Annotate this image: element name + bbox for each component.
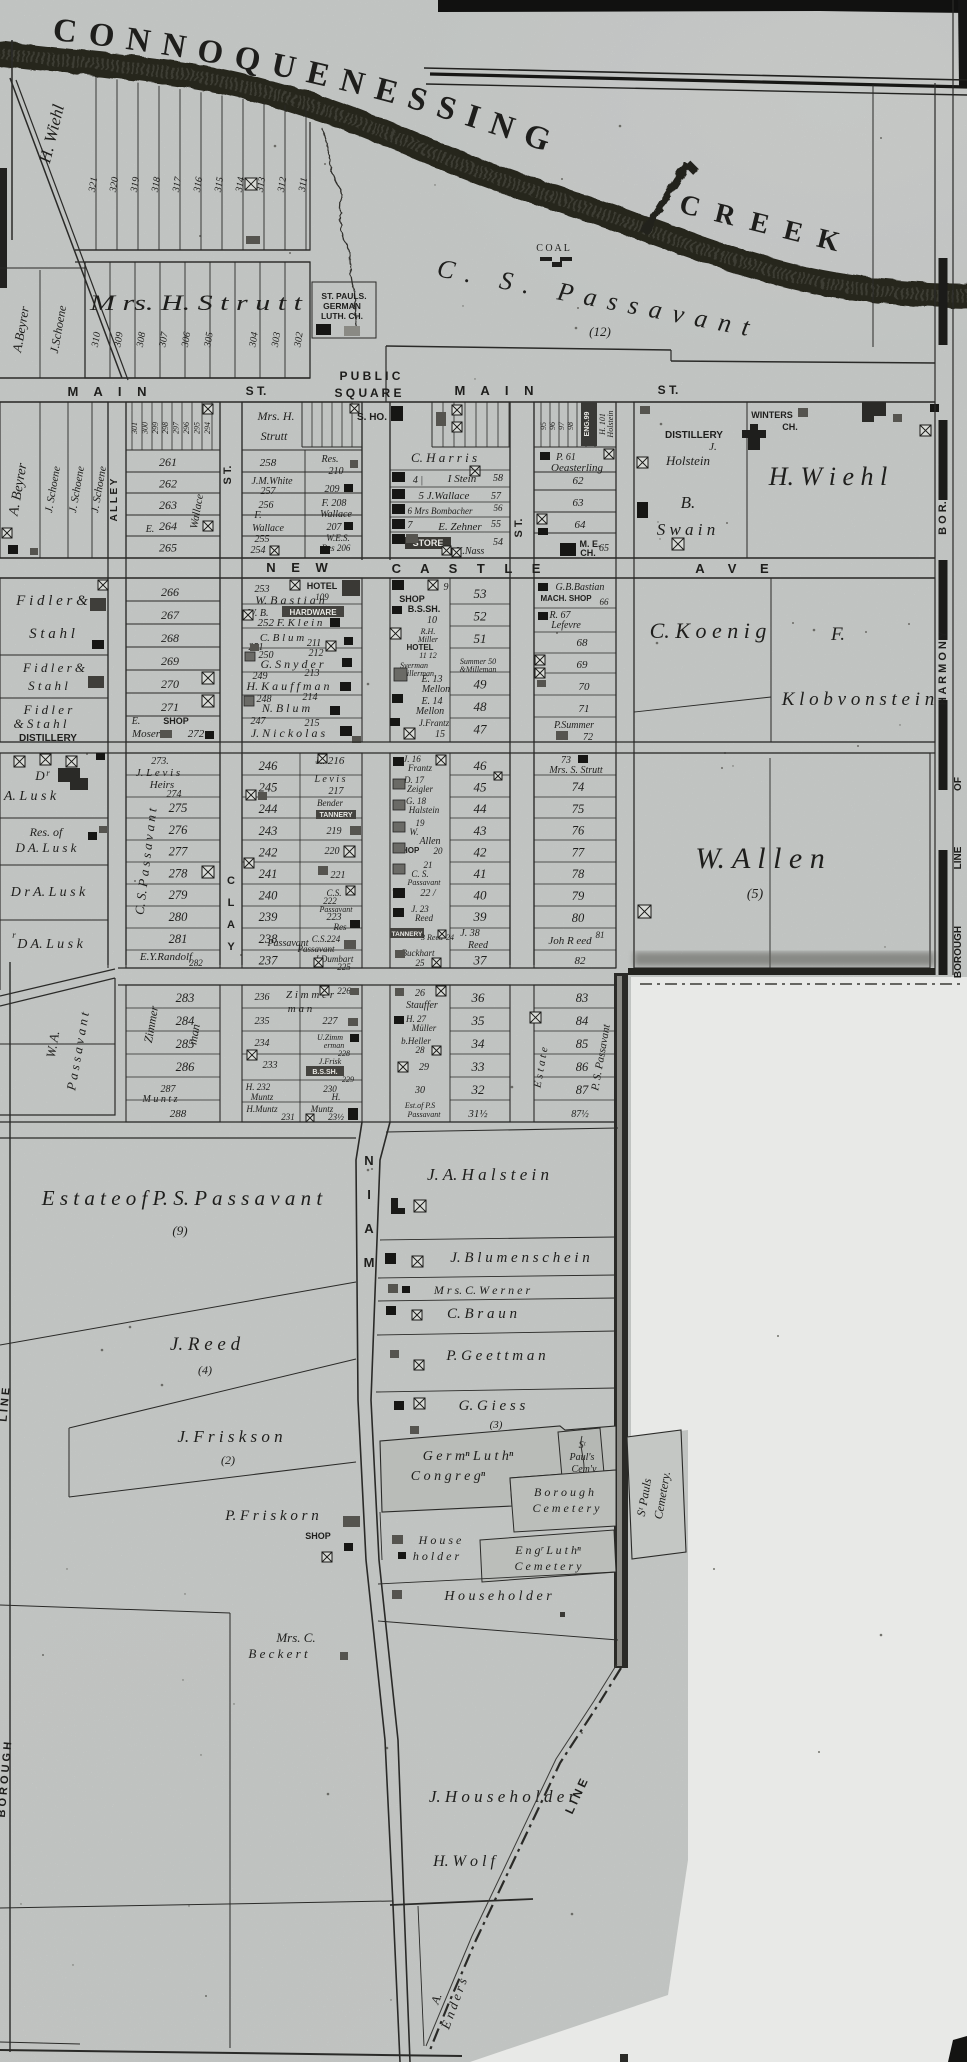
svg-text:56: 56	[494, 503, 504, 513]
svg-text:C.S.224: C.S.224	[312, 934, 341, 944]
svg-text:M: M	[364, 1255, 375, 1270]
svg-text:49: 49	[474, 676, 488, 691]
svg-text:282: 282	[189, 958, 203, 968]
svg-text:34: 34	[471, 1036, 486, 1051]
svg-text:L e v i s: L e v i s	[314, 774, 346, 785]
svg-text:213: 213	[305, 668, 320, 679]
svg-text:Muntz: Muntz	[250, 1092, 274, 1102]
svg-text:15: 15	[435, 729, 445, 740]
svg-text:B.S.SH.: B.S.SH.	[408, 604, 441, 614]
svg-text:WINTERS: WINTERS	[751, 410, 793, 420]
svg-text:I Stein: I Stein	[447, 473, 477, 485]
svg-text:Buckhart: Buckhart	[402, 948, 435, 958]
svg-text:W.E.S.: W.E.S.	[326, 533, 349, 543]
svg-text:H. 232: H. 232	[245, 1082, 271, 1092]
svg-text:87: 87	[576, 1083, 589, 1097]
svg-text:217: 217	[329, 786, 345, 797]
svg-text:S t a h l: S t a h l	[29, 626, 75, 642]
svg-text:274: 274	[167, 789, 182, 800]
svg-text:I: I	[367, 1187, 371, 1202]
svg-text:31½: 31½	[467, 1108, 487, 1120]
svg-text:257: 257	[261, 486, 277, 497]
svg-text:4 |: 4 |	[413, 475, 423, 486]
svg-text:301: 301	[130, 422, 139, 435]
svg-text:66: 66	[600, 597, 610, 607]
svg-text:F i d l e r &: F i d l e r &	[22, 660, 86, 675]
svg-text:S w a i n: S w a i n	[657, 520, 716, 539]
svg-text:J.Frisk: J.Frisk	[319, 1057, 342, 1066]
svg-text:41: 41	[474, 866, 487, 881]
svg-text:N. B l u m: N. B l u m	[261, 701, 311, 715]
svg-text:281: 281	[169, 932, 188, 946]
svg-text:98: 98	[566, 422, 575, 430]
svg-text:74: 74	[572, 780, 585, 794]
svg-text:Lefevre: Lefevre	[550, 620, 581, 631]
svg-text:246: 246	[259, 759, 279, 773]
svg-text:296: 296	[182, 422, 191, 434]
svg-text:G e r mⁿ L u t hⁿ: G e r mⁿ L u t hⁿ	[423, 1449, 514, 1464]
svg-text:P. F r i s k o r n: P. F r i s k o r n	[224, 1508, 318, 1524]
svg-text:N E W: N E W	[266, 560, 334, 575]
svg-text:S. HO.: S. HO.	[357, 412, 387, 423]
svg-text:96: 96	[548, 422, 557, 430]
svg-text:Müller: Müller	[411, 1023, 437, 1033]
svg-text:300: 300	[140, 422, 149, 435]
svg-text:278: 278	[169, 866, 189, 880]
svg-text:Frantz: Frantz	[407, 763, 433, 773]
svg-text:A: A	[364, 1221, 374, 1236]
svg-text:54: 54	[493, 537, 503, 548]
svg-text:268: 268	[161, 631, 179, 645]
svg-text:M rs. H. S t r u t t: M rs. H. S t r u t t	[89, 290, 304, 315]
svg-text:m a n: m a n	[288, 1003, 313, 1015]
svg-text:295: 295	[192, 422, 201, 434]
svg-text:243: 243	[259, 824, 278, 838]
svg-text:E.: E.	[145, 524, 155, 535]
svg-text:& S t a h l: & S t a h l	[13, 716, 66, 731]
svg-text:S T.: S T.	[658, 383, 679, 397]
svg-text:255: 255	[255, 534, 270, 545]
svg-text:Res: Res	[333, 922, 347, 932]
svg-text:82: 82	[575, 955, 587, 967]
svg-text:E.: E.	[131, 716, 141, 727]
svg-text:294: 294	[203, 422, 212, 434]
svg-text:Holstein: Holstein	[665, 453, 710, 468]
svg-text:M A I N: M A I N	[67, 384, 152, 399]
svg-text:25: 25	[416, 958, 426, 968]
svg-text:9: 9	[444, 582, 449, 593]
svg-text:DISTILLERY: DISTILLERY	[665, 430, 723, 441]
svg-text:TANNERY: TANNERY	[392, 931, 423, 938]
svg-text:Paul's: Paul's	[569, 1452, 595, 1463]
svg-text:32: 32	[471, 1082, 486, 1097]
svg-text:5 J.Wallace: 5 J.Wallace	[419, 490, 470, 502]
svg-text:6 Mrs Bombacher: 6 Mrs Bombacher	[408, 506, 473, 516]
svg-text:236: 236	[255, 992, 270, 1003]
svg-text:71: 71	[579, 703, 590, 715]
svg-text:C e m e t e r y: C e m e t e r y	[515, 1559, 583, 1573]
svg-text:J. F r i s k s o n: J. F r i s k s o n	[177, 1427, 282, 1446]
svg-text:C o n g r e gⁿ: C o n g r e gⁿ	[411, 1469, 486, 1484]
svg-text:286: 286	[176, 1060, 196, 1074]
svg-text:Est.of P.S: Est.of P.S	[404, 1101, 435, 1110]
svg-text:C. H a r r i s: C. H a r r i s	[411, 450, 477, 465]
svg-text:BOROUGH: BOROUGH	[953, 926, 964, 978]
svg-text:Wallace: Wallace	[320, 509, 352, 520]
svg-text:F i d l e r: F i d l e r	[23, 702, 74, 717]
svg-text:47: 47	[474, 722, 488, 737]
svg-text:75: 75	[572, 802, 585, 816]
svg-text:M u n t z: M u n t z	[142, 1094, 178, 1105]
svg-text:270: 270	[161, 677, 179, 691]
svg-text:63: 63	[573, 497, 585, 509]
svg-text:288: 288	[170, 1108, 187, 1120]
svg-text:Stauffer: Stauffer	[406, 1000, 438, 1011]
svg-text:77: 77	[572, 845, 585, 859]
svg-text:SHOP: SHOP	[163, 716, 189, 726]
svg-text:J. L e v i s: J. L e v i s	[136, 767, 180, 779]
svg-text:Wallace: Wallace	[252, 523, 284, 534]
svg-text:CH.: CH.	[782, 422, 798, 432]
svg-text:C O A L: C O A L	[536, 243, 570, 254]
svg-text:J. H o u s e h o l d e r: J. H o u s e h o l d e r	[429, 1787, 576, 1806]
svg-text:S Q U A R E: S Q U A R E	[334, 386, 401, 400]
svg-text:283: 283	[176, 991, 195, 1005]
svg-text:J.: J.	[709, 441, 717, 453]
svg-text:39: 39	[473, 909, 488, 924]
svg-text:209: 209	[325, 484, 340, 495]
svg-text:261: 261	[159, 455, 177, 469]
svg-text:H. W i e h l: H. W i e h l	[768, 462, 887, 491]
svg-text:P. G e e t t m a n: P. G e e t t m a n	[445, 1348, 545, 1364]
svg-text:Mrs. C.: Mrs. C.	[275, 1630, 315, 1645]
svg-text:Mellon: Mellon	[415, 706, 444, 717]
svg-text:F.: F.	[253, 510, 261, 521]
svg-text:S T.: S T.	[222, 466, 234, 485]
svg-text:S T.: S T.	[513, 519, 525, 538]
svg-text:42: 42	[474, 844, 488, 859]
svg-text:J. B l u m e n s c h e i n: J. B l u m e n s c h e i n	[450, 1250, 590, 1266]
svg-text:237: 237	[259, 953, 279, 967]
svg-text:(2): (2)	[221, 1453, 235, 1467]
svg-text:234: 234	[255, 1038, 270, 1049]
svg-text:241: 241	[259, 867, 278, 881]
svg-text:68: 68	[577, 637, 589, 649]
svg-text:J.Frantz: J.Frantz	[419, 718, 450, 728]
svg-text:A: A	[227, 919, 235, 931]
svg-text:Bender: Bender	[317, 798, 343, 808]
svg-text:83: 83	[576, 991, 589, 1005]
svg-text:H. W o l f: H. W o l f	[432, 1853, 497, 1870]
svg-text:E.Y.Randolf: E.Y.Randolf	[139, 951, 194, 963]
svg-text:280: 280	[169, 910, 189, 924]
svg-text:D: D	[34, 768, 45, 783]
svg-text:F i d l e r &: F i d l e r &	[15, 593, 88, 609]
svg-text:Moser: Moser	[131, 728, 161, 740]
svg-text:N: N	[364, 1153, 373, 1168]
svg-text:55: 55	[491, 519, 501, 530]
svg-text:C e m e t e r y: C e m e t e r y	[533, 1501, 601, 1515]
svg-text:53: 53	[474, 586, 488, 601]
svg-text:C: C	[227, 875, 235, 887]
svg-text:OF: OF	[953, 777, 964, 791]
svg-text:F.: F.	[830, 624, 845, 645]
svg-text:C. K o e n i g: C. K o e n i g	[650, 618, 767, 643]
svg-text:11 12: 11 12	[419, 651, 436, 660]
svg-text:MACH. SHOP: MACH. SHOP	[540, 594, 592, 603]
svg-text:244: 244	[259, 802, 278, 816]
svg-text:80: 80	[572, 911, 585, 925]
svg-text:Res.: Res.	[321, 454, 339, 465]
svg-text:A L L E Y: A L L E Y	[109, 478, 120, 521]
svg-text:(9): (9)	[172, 1223, 187, 1238]
svg-text:H. K a u f f m a n: H. K a u f f m a n	[245, 679, 329, 693]
svg-text:S T.: S T.	[246, 384, 267, 398]
svg-text:Mrs. H.: Mrs. H.	[256, 409, 294, 423]
svg-text:r: r	[12, 930, 16, 940]
svg-text:B e c k e r t: B e c k e r t	[248, 1646, 308, 1661]
svg-text:SHOP: SHOP	[305, 1531, 331, 1541]
svg-text:J. A. H a l s t e i n: J. A. H a l s t e i n	[427, 1165, 549, 1184]
svg-text:242: 242	[259, 845, 278, 859]
svg-text:Zeigler: Zeigler	[407, 784, 433, 794]
svg-text:266: 266	[161, 585, 179, 599]
svg-text:10: 10	[427, 615, 437, 626]
svg-text:B o r o u g h: B o r o u g h	[534, 1485, 594, 1499]
svg-text:37: 37	[473, 952, 488, 967]
svg-text:LINE: LINE	[953, 846, 964, 869]
svg-text:109: 109	[315, 592, 329, 602]
svg-text:D A. L u s k: D A. L u s k	[15, 840, 77, 855]
svg-text:263: 263	[159, 498, 177, 512]
svg-text:Passavant: Passavant	[407, 878, 442, 887]
svg-text:297: 297	[172, 421, 181, 434]
svg-text:Passavant: Passavant	[407, 1110, 442, 1119]
svg-text:B.: B.	[681, 493, 696, 512]
svg-text:95: 95	[539, 422, 548, 430]
svg-text:64: 64	[575, 519, 587, 531]
svg-text:D A. L u s k: D A. L u s k	[16, 937, 83, 952]
svg-text:Mrs. S. Strutt: Mrs. S. Strutt	[548, 765, 603, 776]
svg-text:51: 51	[474, 631, 487, 646]
svg-text:207: 207	[327, 522, 343, 533]
svg-text:210: 210	[329, 466, 344, 477]
svg-text:62: 62	[573, 475, 585, 487]
svg-text:23½: 23½	[328, 1112, 344, 1122]
svg-text:B.S.SH.: B.S.SH.	[312, 1069, 337, 1076]
svg-text:A. L u s k: A. L u s k	[3, 789, 57, 804]
svg-text:Passavant: Passavant	[266, 938, 308, 949]
svg-text:Y: Y	[227, 941, 235, 953]
svg-text:78: 78	[572, 867, 585, 881]
svg-text:65: 65	[599, 543, 609, 554]
svg-text:76: 76	[572, 824, 585, 838]
svg-text:HOTEL: HOTEL	[307, 581, 338, 591]
svg-text:22 /: 22 /	[420, 888, 437, 899]
svg-text:(12): (12)	[589, 324, 611, 339]
svg-text:Oeasterling: Oeasterling	[551, 462, 603, 474]
svg-text:r: r	[46, 768, 50, 778]
svg-text:44: 44	[474, 801, 488, 816]
svg-text:231: 231	[281, 1112, 295, 1122]
svg-text:E. Zehner: E. Zehner	[437, 521, 482, 533]
svg-text:J. N i c k o l a s: J. N i c k o l a s	[251, 726, 326, 740]
svg-text:G.B.Bastian: G.B.Bastian	[556, 582, 605, 593]
svg-text:240: 240	[259, 889, 279, 903]
svg-text:36: 36	[471, 990, 486, 1005]
svg-text:272: 272	[188, 728, 205, 740]
svg-text:43: 43	[474, 823, 488, 838]
svg-text:24: 24	[446, 933, 454, 942]
svg-text:45: 45	[474, 780, 488, 795]
svg-text:264: 264	[159, 519, 177, 533]
svg-text:267: 267	[161, 608, 180, 622]
svg-text:h o l d e r: h o l d e r	[413, 1549, 460, 1563]
svg-text:29: 29	[419, 1062, 429, 1073]
svg-text:(4): (4)	[198, 1363, 212, 1377]
svg-text:79: 79	[572, 889, 585, 903]
svg-text:275: 275	[169, 801, 188, 815]
svg-text:W. A l l e n: W. A l l e n	[695, 842, 824, 875]
svg-text:233: 233	[263, 1060, 278, 1071]
svg-text:58: 58	[493, 473, 503, 484]
svg-text:H o u s e h o l d e r: H o u s e h o l d e r	[443, 1589, 552, 1604]
svg-text:P.Summer: P.Summer	[553, 720, 594, 731]
svg-text:227: 227	[323, 1016, 339, 1027]
svg-text:D r A. L u s k: D r A. L u s k	[10, 885, 86, 900]
svg-text:35: 35	[471, 1013, 486, 1028]
svg-text:ENG.99: ENG.99	[584, 411, 591, 436]
svg-text:84: 84	[576, 1014, 589, 1028]
svg-text:87½: 87½	[571, 1109, 589, 1120]
svg-text:57: 57	[491, 491, 502, 502]
svg-text:69: 69	[577, 659, 589, 671]
svg-text:&Milleman: &Milleman	[460, 665, 497, 674]
svg-text:H.: H.	[331, 1092, 341, 1102]
svg-text:A V E: A V E	[695, 561, 778, 576]
svg-text:33: 33	[471, 1059, 486, 1074]
svg-text:225: 225	[337, 962, 351, 972]
svg-text:20: 20	[434, 846, 444, 856]
svg-text:LUTH. CH.: LUTH. CH.	[321, 311, 363, 321]
svg-text:S t a h l: S t a h l	[28, 678, 68, 693]
svg-text:C. B l u m: C. B l u m	[260, 632, 304, 644]
svg-text:265: 265	[159, 541, 177, 555]
svg-text:Reed: Reed	[467, 940, 489, 951]
svg-text:26: 26	[415, 988, 425, 999]
svg-text:85: 85	[576, 1037, 589, 1051]
svg-text:221: 221	[331, 870, 346, 881]
svg-text:299: 299	[151, 422, 160, 434]
svg-text:262: 262	[159, 476, 177, 490]
svg-text:269: 269	[161, 654, 179, 668]
svg-text:30: 30	[414, 1085, 425, 1096]
svg-text:C A S T L E: C A S T L E	[392, 561, 549, 576]
svg-text:Strutt: Strutt	[261, 429, 288, 443]
svg-text:H.Muntz: H.Muntz	[245, 1104, 278, 1114]
svg-text:K l o b v o n s t e i n: K l o b v o n s t e i n	[781, 689, 935, 710]
svg-text:254: 254	[251, 545, 266, 556]
svg-text:277: 277	[169, 845, 189, 859]
svg-text:P U B L I C: P U B L I C	[340, 369, 401, 383]
svg-text:279: 279	[169, 888, 189, 902]
svg-text:F. 208: F. 208	[321, 498, 347, 509]
svg-text:Res. of: Res. of	[29, 825, 64, 839]
svg-text:Holstein: Holstein	[606, 410, 615, 438]
svg-text:HARDWARE: HARDWARE	[289, 608, 337, 617]
svg-text:97: 97	[557, 421, 566, 430]
svg-text:C. B r a u n: C. B r a u n	[447, 1306, 517, 1322]
svg-text:(5): (5)	[747, 887, 764, 902]
svg-text:252 F. K l e i n: 252 F. K l e i n	[258, 617, 323, 629]
svg-text:28: 28	[416, 1045, 426, 1055]
svg-text:229: 229	[342, 1075, 354, 1084]
svg-text:239: 239	[259, 910, 279, 924]
svg-text:86: 86	[576, 1060, 589, 1074]
svg-text:W.: W.	[410, 827, 419, 837]
svg-text:48: 48	[474, 699, 488, 714]
svg-text:E n gʳ L u t hⁿ: E n gʳ L u t hⁿ	[514, 1543, 581, 1557]
svg-text:H A R M O N Y: H A R M O N Y	[937, 630, 949, 705]
svg-text:G. G i e s s: G. G i e s s	[459, 1398, 526, 1414]
svg-text:E s t a t e o f P. S. P a s: E s t a t e o f P. S. P a s s a v a n t	[41, 1186, 324, 1210]
svg-text:258: 258	[260, 457, 277, 469]
svg-text:M r s. C. W e r n e r: M r s. C. W e r n e r	[433, 1283, 531, 1297]
svg-text:M A I N: M A I N	[454, 383, 539, 398]
svg-text:B O R.: B O R.	[937, 501, 949, 535]
svg-text:46: 46	[474, 758, 488, 773]
svg-text:SHOP: SHOP	[399, 594, 425, 604]
svg-text:GERMAN: GERMAN	[323, 301, 361, 311]
svg-text:52: 52	[474, 609, 488, 624]
svg-text:Joh R eed: Joh R eed	[548, 935, 592, 947]
svg-text:(3): (3)	[490, 1419, 503, 1431]
svg-text:276: 276	[169, 823, 189, 837]
svg-text:Reed: Reed	[414, 913, 433, 923]
svg-text:J. R e e d: J. R e e d	[170, 1334, 241, 1355]
svg-text:Mellon: Mellon	[421, 684, 450, 695]
svg-text:J. 38: J. 38	[460, 928, 479, 939]
svg-text:81: 81	[596, 930, 605, 940]
svg-text:226: 226	[337, 986, 351, 996]
svg-text:CH.: CH.	[580, 548, 596, 558]
svg-text:220: 220	[325, 846, 340, 857]
svg-text:273.: 273.	[151, 756, 169, 767]
svg-text:70: 70	[579, 681, 591, 693]
svg-text:TANNERY: TANNERY	[319, 812, 352, 819]
svg-text:Halstein: Halstein	[408, 805, 440, 815]
svg-text:ST. PAULS.: ST. PAULS.	[321, 291, 366, 301]
svg-text:H o u s e: H o u s e	[418, 1533, 462, 1547]
svg-text:40: 40	[474, 888, 488, 903]
svg-text:298: 298	[161, 422, 170, 434]
svg-text:L: L	[228, 897, 235, 909]
svg-text:271: 271	[161, 700, 179, 714]
svg-text:219: 219	[327, 826, 342, 837]
svg-text:235: 235	[255, 1016, 270, 1027]
